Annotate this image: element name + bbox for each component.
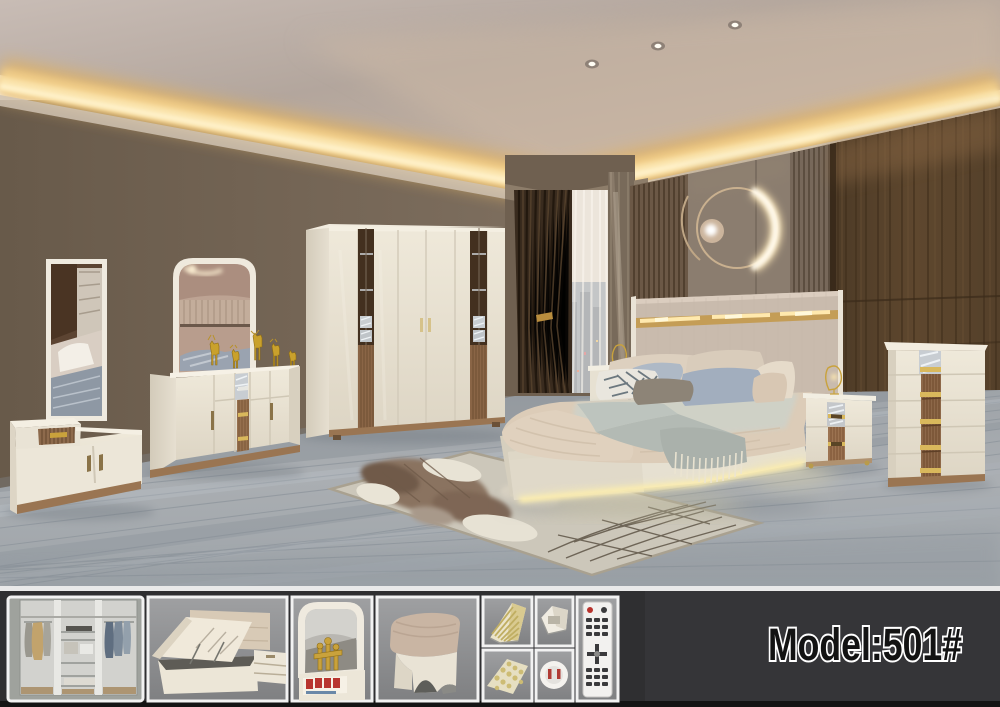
svg-text:Model:501#: Model:501# <box>768 619 962 670</box>
